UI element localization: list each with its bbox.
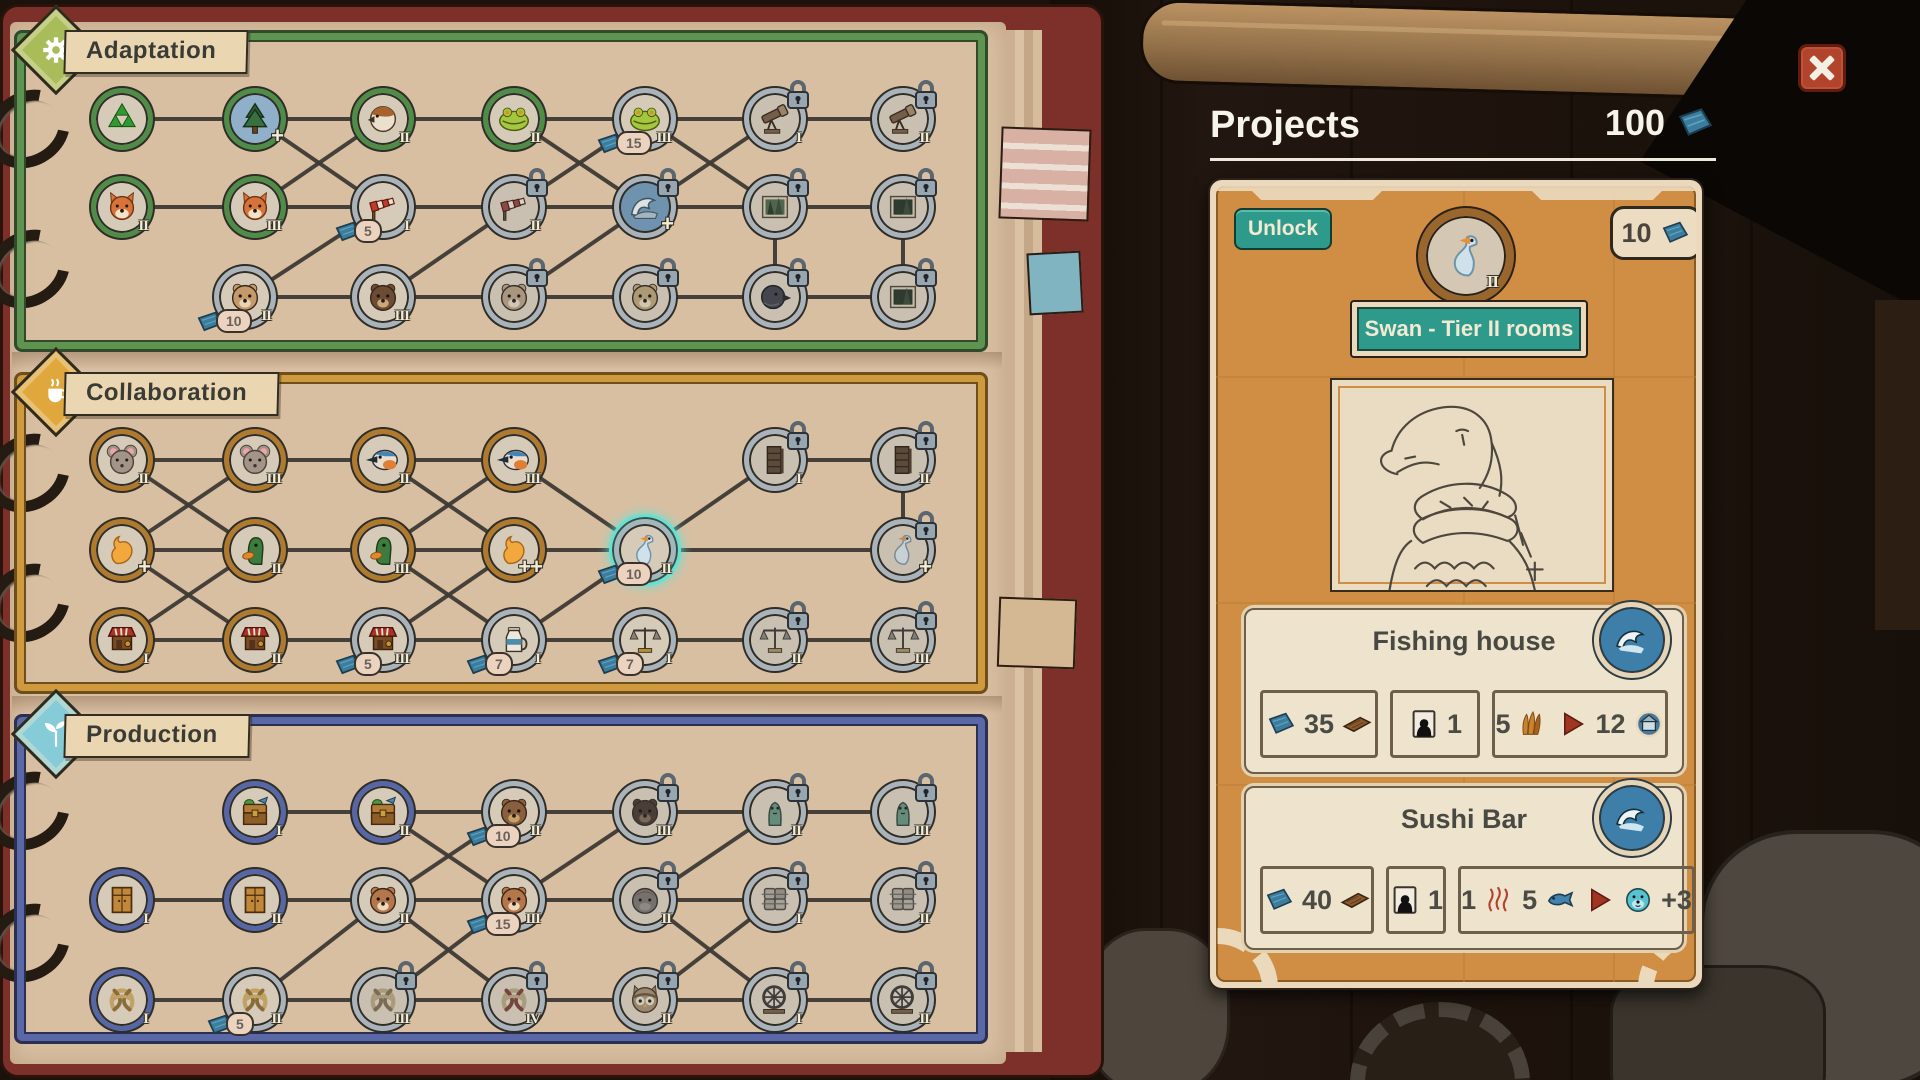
tech-node-collaboration-mouse-II[interactable]: II: [91, 429, 153, 491]
tier-numeral: II: [138, 218, 148, 235]
cost-value: 1: [1447, 709, 1462, 740]
arrow-icon: [1583, 884, 1615, 916]
tier-numeral: II: [530, 218, 540, 235]
tier-numeral: II: [530, 823, 540, 840]
lock-icon: [785, 772, 811, 804]
tech-node-adaptation-telescope-I[interactable]: I: [744, 88, 806, 150]
tech-node-production-knot-III[interactable]: III: [352, 969, 414, 1031]
tech-node-production-owl-II[interactable]: II: [614, 969, 676, 1031]
projects-title: Projects: [1210, 104, 1360, 147]
cabinet-icon: [236, 881, 274, 919]
panel-trim: [1252, 191, 1382, 200]
cost-row: 351512: [1260, 690, 1668, 758]
tech-node-production-stone-II[interactable]: II: [872, 869, 934, 931]
lock-icon: [655, 772, 681, 804]
tech-node-adaptation-telescope-II[interactable]: II: [872, 88, 934, 150]
unlock-cost-flag: 7: [595, 650, 644, 678]
lock-icon: [913, 860, 939, 892]
tier-numeral: III: [525, 471, 540, 488]
tech-node-collaboration-swan-+[interactable]: +: [872, 519, 934, 581]
tech-node-collaboration-mallard-II[interactable]: II: [224, 519, 286, 581]
fish-icon: [1544, 884, 1576, 916]
tier-numeral: II: [530, 130, 540, 147]
tech-node-collaboration-scales-II[interactable]: II: [744, 609, 806, 671]
frog-icon: [495, 100, 533, 138]
fish-trap-icon: [1633, 708, 1665, 740]
tech-node-adaptation-beaver-II[interactable]: II10: [214, 266, 276, 328]
cost-value: +3: [1661, 885, 1692, 916]
tech-tree: +IIIIIII15IIIIIIIII5II+II10IIIIIIIIIIIII…: [0, 0, 1100, 1080]
tier-numeral: I: [276, 823, 281, 840]
tier-numeral: II: [399, 130, 409, 147]
tier-numeral: III: [525, 911, 540, 928]
knot-icon: [103, 981, 141, 1019]
close-button[interactable]: [1798, 44, 1846, 92]
tier-numeral: I: [143, 1011, 148, 1028]
unlock-button[interactable]: Unlock: [1234, 208, 1332, 250]
seal-icon: [1622, 884, 1654, 916]
tech-node-production-bear-II[interactable]: II10: [483, 781, 545, 843]
tech-node-collaboration-milk-I[interactable]: I7: [483, 609, 545, 671]
tech-node-collaboration-scales-III[interactable]: III: [872, 609, 934, 671]
tech-node-adaptation-fox-III[interactable]: III: [224, 176, 286, 238]
tech-node-production-hamster-III[interactable]: III15: [483, 869, 545, 931]
panel-trim: [1532, 191, 1662, 200]
tier-numeral: III: [656, 130, 671, 147]
lock-icon: [393, 960, 419, 992]
project-card-fishing-house[interactable]: Fishing house351512: [1244, 608, 1684, 774]
section-title-production: Production: [63, 714, 250, 758]
chest-icon: [236, 793, 274, 831]
lock-icon: [785, 960, 811, 992]
arrow-icon: [1556, 708, 1588, 740]
worker-icon: [1408, 708, 1440, 740]
cost-value: 1: [1428, 885, 1443, 916]
tech-node-adaptation-windsock-I[interactable]: I5: [352, 176, 414, 238]
tier-numeral: +: [919, 554, 931, 580]
project-detail-inner: Unlock 10 II Swan - Tier II rooms: [1216, 186, 1696, 982]
tech-node-adaptation-windsock-II[interactable]: II: [483, 176, 545, 238]
tier-numeral: I: [404, 218, 409, 235]
tech-node-adaptation-beaver3[interactable]: [614, 266, 676, 328]
tech-node-collaboration-kingfisher-II[interactable]: II: [352, 429, 414, 491]
tier-numeral: +: [661, 211, 673, 237]
lock-icon: [785, 167, 811, 199]
tier-numeral: III: [266, 218, 281, 235]
cost-row: 40115+3: [1260, 866, 1668, 934]
cost-value: 5: [1495, 709, 1510, 740]
tier-numeral: II: [138, 471, 148, 488]
tier-numeral: II: [919, 911, 929, 928]
tier-numeral: III: [914, 823, 929, 840]
tier-numeral: II: [661, 911, 671, 928]
cost-value: 35: [1304, 709, 1334, 740]
tech-node-adaptation-forest2[interactable]: [872, 266, 934, 328]
lock-icon: [785, 257, 811, 289]
blueprint-cloth-icon: [1659, 217, 1691, 249]
tier-numeral: II: [1487, 272, 1498, 292]
worker-icon: [1389, 884, 1421, 916]
swan-icon: [1440, 230, 1492, 282]
lock-icon: [913, 257, 939, 289]
panel-trim: [1216, 186, 1696, 191]
tech-node-adaptation-fox-II[interactable]: II: [91, 176, 153, 238]
blueprint-balance: 100: [1570, 102, 1716, 144]
tech-node-production-stone-I[interactable]: I: [744, 869, 806, 931]
lock-icon: [655, 167, 681, 199]
tier-numeral: I: [796, 471, 801, 488]
unlock-cost-flag: 5: [205, 1010, 254, 1038]
screen: Adaptation Collaboration Production +III…: [0, 0, 1920, 1080]
cost-box: 512: [1492, 690, 1668, 758]
tech-node-production-cabinet-I[interactable]: I: [91, 869, 153, 931]
project-card-sushi-bar[interactable]: Sushi Bar40115+3: [1244, 786, 1684, 950]
tech-node-collaboration-market-I[interactable]: I: [91, 609, 153, 671]
bird-icon: [364, 100, 402, 138]
tier-numeral: II: [399, 911, 409, 928]
cost-value: 12: [1595, 709, 1625, 740]
tech-node-collaboration-bookshelf-I[interactable]: I: [744, 429, 806, 491]
tech-node-production-wheel-II[interactable]: II: [872, 969, 934, 1031]
unlock-cost-value: 10: [1621, 218, 1651, 249]
cost-box: 15+3: [1458, 866, 1695, 934]
swan-sketch: [1330, 378, 1614, 592]
tech-node-collaboration-duckgold-+[interactable]: +: [91, 519, 153, 581]
blueprint-cloth-icon: [1263, 884, 1295, 916]
lock-icon: [524, 257, 550, 289]
tier-numeral: III: [914, 651, 929, 668]
unlock-cost-flag: 10: [195, 307, 252, 335]
tier-numeral: II: [271, 651, 281, 668]
unlock-cost-flag: 10: [464, 822, 521, 850]
tier-numeral: II: [661, 561, 671, 578]
blueprint-cloth-icon: [1674, 102, 1716, 144]
tech-node-collaboration-market-III[interactable]: III5: [352, 609, 414, 671]
lock-icon: [913, 510, 939, 542]
heat-icon: [1483, 884, 1515, 916]
cabinet-icon: [103, 881, 141, 919]
tech-node-adaptation-tree-+[interactable]: +: [224, 88, 286, 150]
tech-node-collaboration-mouse-III[interactable]: III: [224, 429, 286, 491]
tech-node-production-turtle-II[interactable]: II: [744, 781, 806, 843]
tier-numeral: III: [394, 651, 409, 668]
crate-edge: [1872, 300, 1920, 630]
projects-underline: [1210, 158, 1716, 161]
unlock-cost-flag: 15: [464, 910, 521, 938]
lock-icon: [785, 79, 811, 111]
tier-numeral: II: [271, 911, 281, 928]
tech-node-collaboration-market-II[interactable]: II: [224, 609, 286, 671]
cost-box: 40: [1260, 866, 1374, 934]
tech-node-production-boar-II[interactable]: II: [614, 869, 676, 931]
tech-node-production-turtle-III[interactable]: III: [872, 781, 934, 843]
wave-icon: [1589, 775, 1675, 861]
tier-numeral: III: [394, 308, 409, 325]
unlock-cost-flag: 10: [595, 560, 652, 588]
blueprint-cloth-icon: [1265, 708, 1297, 740]
tier-numeral: II: [791, 823, 801, 840]
tier-numeral: II: [399, 471, 409, 488]
tech-node-production-knot-I[interactable]: I: [91, 969, 153, 1031]
tree-icon: [236, 100, 274, 138]
lock-icon: [655, 860, 681, 892]
duckgold-icon: [103, 531, 141, 569]
lock-icon: [913, 167, 939, 199]
lock-icon: [655, 257, 681, 289]
tier-numeral: II: [261, 308, 271, 325]
tech-node-adaptation-bird-II[interactable]: II: [352, 88, 414, 150]
selected-title-plate: Swan - Tier II rooms: [1350, 300, 1588, 358]
tech-node-adaptation-recycle[interactable]: [91, 88, 153, 150]
cost-box: 1: [1390, 690, 1480, 758]
tech-node-adaptation-wave-+[interactable]: +: [614, 176, 676, 238]
tier-numeral: II: [919, 1011, 929, 1028]
tier-numeral: +: [138, 554, 150, 580]
tier-numeral: III: [394, 1011, 409, 1028]
tech-node-adaptation-frog-III[interactable]: III15: [614, 88, 676, 150]
tier-numeral: I: [143, 651, 148, 668]
tech-node-adaptation-forest[interactable]: [744, 176, 806, 238]
tier-numeral: ++: [518, 554, 542, 580]
tech-node-production-wheel-I[interactable]: I: [744, 969, 806, 1031]
tier-numeral: III: [394, 561, 409, 578]
tier-numeral: II: [399, 823, 409, 840]
selected-node-medallion: II: [1418, 208, 1514, 304]
lock-icon: [913, 772, 939, 804]
kingfisher-icon: [364, 441, 402, 479]
tech-node-adaptation-beaver[interactable]: [483, 266, 545, 328]
tech-node-collaboration-bookshelf-II[interactable]: II: [872, 429, 934, 491]
tier-numeral: II: [661, 1011, 671, 1028]
tech-node-adaptation-frog-II[interactable]: II: [483, 88, 545, 150]
balance-value: 100: [1605, 102, 1665, 144]
lock-icon: [655, 960, 681, 992]
tech-node-production-hamster-II[interactable]: II: [352, 869, 414, 931]
hamster-icon: [364, 881, 402, 919]
tier-numeral: II: [919, 471, 929, 488]
tier-numeral: +: [271, 123, 283, 149]
tech-node-collaboration-duckgold-++[interactable]: ++: [483, 519, 545, 581]
tech-node-production-chest-I[interactable]: I: [224, 781, 286, 843]
tier-numeral: I: [796, 1011, 801, 1028]
cost-value: 5: [1522, 885, 1537, 916]
tier-numeral: I: [143, 911, 148, 928]
lock-icon: [785, 860, 811, 892]
tier-numeral: I: [796, 911, 801, 928]
mallard-icon: [236, 531, 274, 569]
lock-icon: [913, 79, 939, 111]
cost-box: 35: [1260, 690, 1378, 758]
recycle-icon: [103, 100, 141, 138]
tech-node-adaptation-beaver2-III[interactable]: III: [352, 266, 414, 328]
section-title-adaptation: Adaptation: [63, 30, 248, 74]
cost-value: 40: [1302, 885, 1332, 916]
lock-icon: [913, 960, 939, 992]
plank-icon: [1339, 884, 1371, 916]
tech-node-collaboration-kingfisher-III[interactable]: III: [483, 429, 545, 491]
tech-node-adaptation-crow[interactable]: [744, 266, 806, 328]
tech-node-production-knotred-IV[interactable]: IV: [483, 969, 545, 1031]
tech-node-production-cabinet-II[interactable]: II: [224, 869, 286, 931]
lock-icon: [913, 600, 939, 632]
wave-icon: [1589, 597, 1675, 683]
wood-plank: [1160, 0, 1163, 1080]
market-icon: [103, 621, 141, 659]
tier-numeral: I: [796, 130, 801, 147]
unlock-cost-badge: 10: [1610, 206, 1696, 260]
tech-node-production-bear2-III[interactable]: III: [614, 781, 676, 843]
tier-numeral: I: [535, 651, 540, 668]
lock-icon: [913, 420, 939, 452]
tier-numeral: I: [666, 651, 671, 668]
tier-numeral: II: [919, 130, 929, 147]
unlock-cost-flag: 5: [333, 650, 382, 678]
lock-icon: [524, 960, 550, 992]
lock-icon: [524, 167, 550, 199]
tech-node-production-chest-II[interactable]: II: [352, 781, 414, 843]
market-icon: [236, 621, 274, 659]
chest-icon: [364, 793, 402, 831]
tier-numeral: III: [656, 823, 671, 840]
plank-icon: [1341, 708, 1373, 740]
lock-icon: [785, 600, 811, 632]
tech-node-production-knot-II[interactable]: II5: [224, 969, 286, 1031]
lock-icon: [785, 420, 811, 452]
straw-icon: [1517, 708, 1549, 740]
tier-numeral: II: [271, 1011, 281, 1028]
tier-numeral: II: [791, 651, 801, 668]
mouse-icon: [103, 441, 141, 479]
tier-numeral: IV: [525, 1011, 540, 1028]
section-title-collaboration: Collaboration: [63, 372, 279, 416]
unlock-cost-flag: 7: [464, 650, 513, 678]
project-detail-panel: Unlock 10 II Swan - Tier II rooms: [1208, 178, 1704, 990]
unlock-cost-flag: 5: [333, 217, 382, 245]
tier-numeral: II: [271, 561, 281, 578]
tier-numeral: III: [266, 471, 281, 488]
cost-value: 1: [1461, 885, 1476, 916]
tech-node-adaptation-forest2[interactable]: [872, 176, 934, 238]
cost-box: 1: [1386, 866, 1446, 934]
tech-node-collaboration-mallard-III[interactable]: III: [352, 519, 414, 581]
unlock-cost-flag: 15: [595, 129, 652, 157]
fox-icon: [103, 188, 141, 226]
tech-node-collaboration-scales-I[interactable]: I7: [614, 609, 676, 671]
tech-node-collaboration-swan-II[interactable]: II10: [614, 519, 676, 581]
